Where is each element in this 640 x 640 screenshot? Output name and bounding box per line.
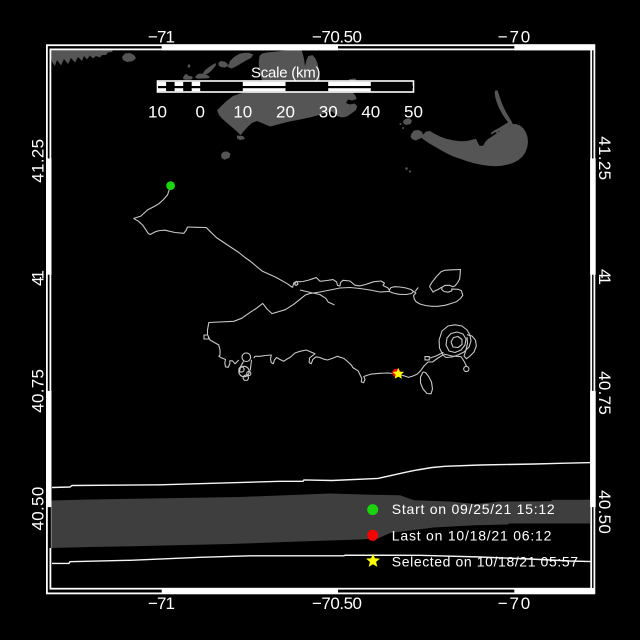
svg-text:−70: −70 bbox=[498, 28, 531, 47]
svg-text:20: 20 bbox=[276, 102, 295, 121]
svg-text:41: 41 bbox=[595, 269, 614, 285]
svg-text:41.25: 41.25 bbox=[595, 136, 614, 180]
svg-text:50: 50 bbox=[404, 102, 423, 121]
svg-text:40: 40 bbox=[361, 102, 380, 121]
svg-text:−71: −71 bbox=[148, 594, 175, 613]
svg-text:Scale (km): Scale (km) bbox=[251, 65, 321, 82]
svg-text:30: 30 bbox=[319, 102, 338, 121]
svg-text:0: 0 bbox=[195, 102, 204, 121]
svg-text:41: 41 bbox=[29, 270, 48, 286]
svg-text:Selected on 10/18/21 05:57: Selected on 10/18/21 05:57 bbox=[392, 554, 578, 570]
svg-text:Start on 09/25/21 15:12: Start on 09/25/21 15:12 bbox=[392, 501, 555, 517]
svg-text:10: 10 bbox=[233, 102, 252, 121]
svg-text:−70.50: −70.50 bbox=[312, 594, 362, 613]
svg-text:10: 10 bbox=[148, 102, 167, 121]
svg-text:−70: −70 bbox=[498, 594, 531, 613]
svg-text:−70.50: −70.50 bbox=[312, 28, 362, 47]
svg-text:40.75: 40.75 bbox=[29, 369, 48, 413]
svg-text:40.75: 40.75 bbox=[595, 371, 614, 415]
svg-text:40.50: 40.50 bbox=[29, 487, 48, 531]
svg-text:41.25: 41.25 bbox=[29, 139, 48, 183]
svg-text:Last on 10/18/21 06:12: Last on 10/18/21 06:12 bbox=[392, 527, 552, 543]
svg-text:40.50: 40.50 bbox=[595, 490, 614, 534]
svg-text:−71: −71 bbox=[148, 28, 175, 47]
